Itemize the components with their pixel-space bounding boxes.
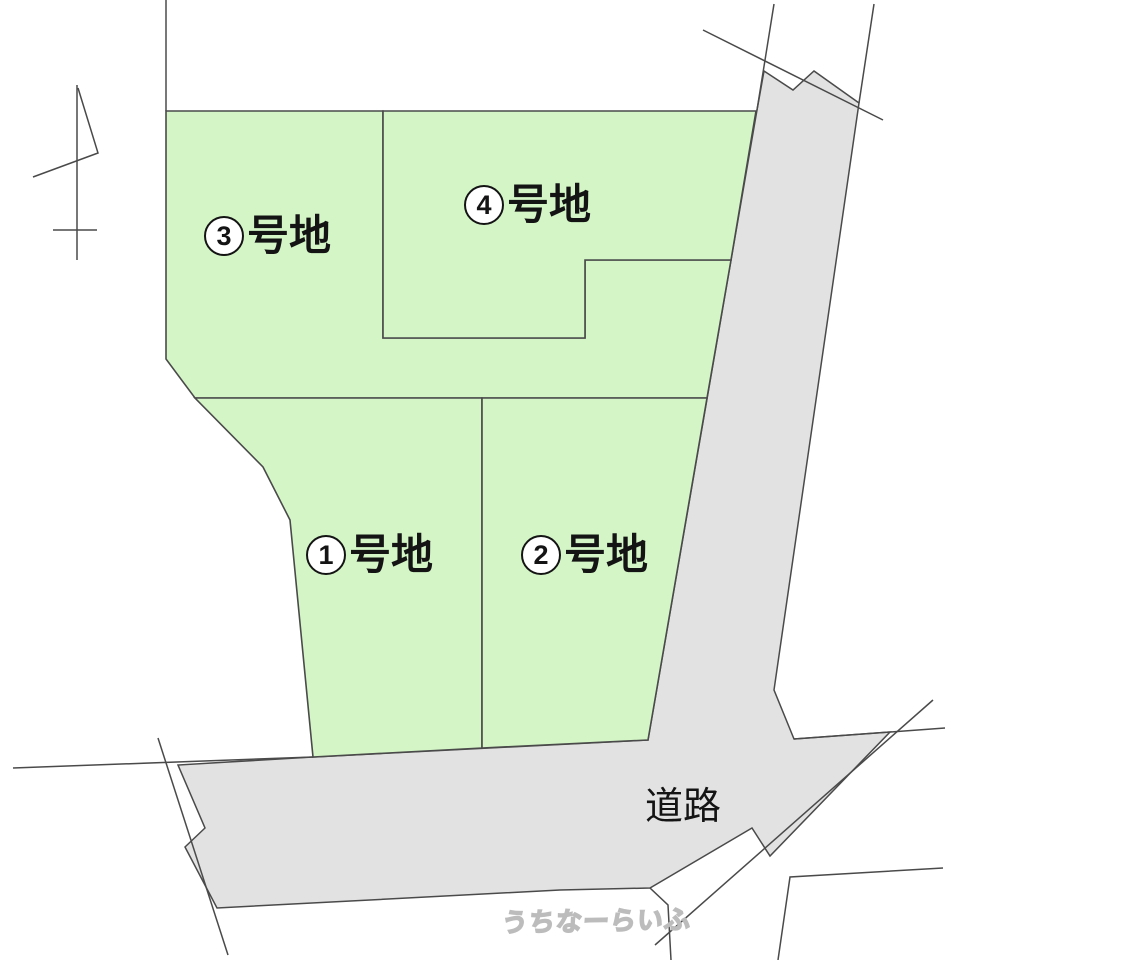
- plot-2-number-circle: 2: [521, 535, 561, 575]
- parcel-line-bottom-right: [778, 868, 943, 960]
- plot-1-area[interactable]: [195, 398, 482, 757]
- site-plan-canvas: 3 号地 4 号地 1 号地 2 号地 道路 うちなーらいふ: [0, 0, 1125, 960]
- plot-1-label-text: 号地: [349, 534, 433, 576]
- road-label: 道路: [645, 788, 721, 826]
- plot-1-number-circle: 1: [306, 535, 346, 575]
- plot-4-number-circle: 4: [464, 185, 504, 225]
- plot-3-label-text: 号地: [247, 215, 331, 257]
- site-plan-drawing: [0, 0, 1125, 960]
- plot-3-label: 3 号地: [204, 215, 331, 257]
- plot-2-label-text: 号地: [564, 534, 648, 576]
- plot-4-label: 4 号地: [464, 184, 591, 226]
- plot-2-label: 2 号地: [521, 534, 648, 576]
- watermark-text: うちなーらいふ: [501, 906, 693, 935]
- plot-3-number-circle: 3: [204, 216, 244, 256]
- road-edge-line-upper-right: [859, 4, 874, 103]
- plot-4-label-text: 号地: [507, 184, 591, 226]
- plot-1-label: 1 号地: [306, 534, 433, 576]
- north-arrow-icon: [33, 85, 98, 260]
